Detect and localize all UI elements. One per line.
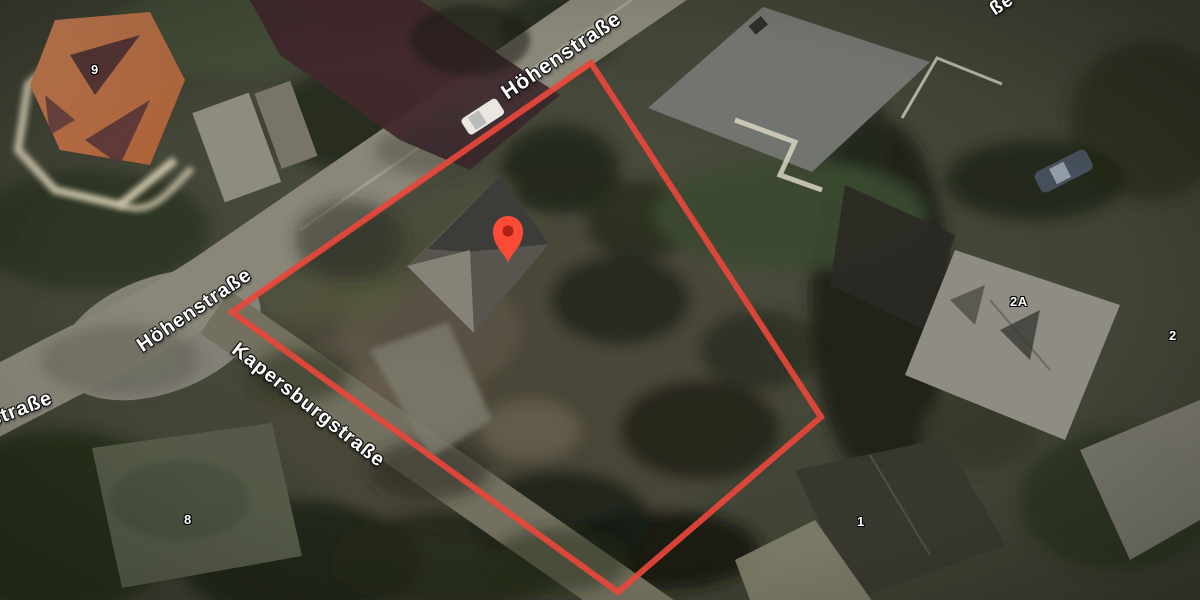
house-number-1: 1 <box>857 514 865 529</box>
satellite-map[interactable]: Höhenstraße Höhenstraße straße ße Kapers… <box>0 0 1200 600</box>
house-number-9: 9 <box>91 62 99 77</box>
house-number-2a: 2A <box>1010 294 1028 309</box>
house-number-8: 8 <box>184 512 192 527</box>
pin-hole-icon <box>503 226 514 237</box>
house-number-2: 2 <box>1169 328 1177 343</box>
